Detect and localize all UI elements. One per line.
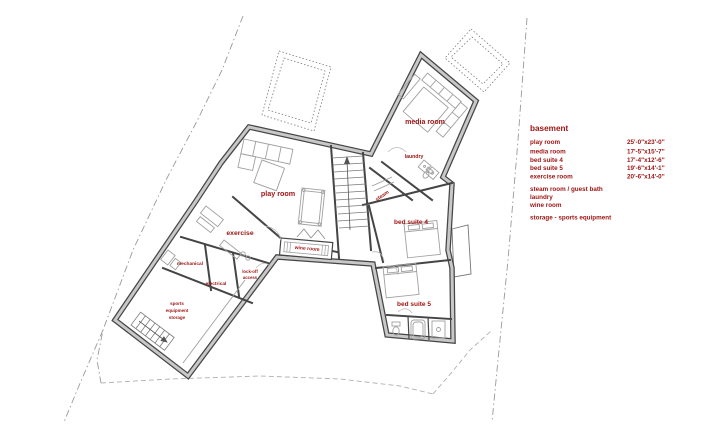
legend-item-name: laundry bbox=[530, 194, 553, 201]
legend-item-name: bed suite 4 bbox=[530, 157, 563, 164]
legend-title: basement bbox=[530, 124, 568, 133]
legend-item-dims: 20'-6"x14'-0" bbox=[627, 174, 665, 181]
exterior-walls bbox=[115, 55, 476, 376]
legend-item-dims: 17'-5"x15'-7" bbox=[627, 149, 665, 156]
floor-plan-drawing: play room media room laundry steam bed s… bbox=[0, 0, 708, 425]
label-lock-off-1: lock-off bbox=[242, 269, 258, 274]
label-bed-suite-5: bed suite 5 bbox=[397, 301, 431, 308]
legend-item-name: media room bbox=[530, 149, 566, 156]
legend-item-name: wine room bbox=[529, 202, 562, 209]
label-electrical: electrical bbox=[206, 281, 227, 287]
label-laundry: laundry bbox=[405, 154, 424, 160]
label-exercise: exercise bbox=[226, 230, 253, 237]
label-storage-1: sports bbox=[170, 301, 184, 306]
legend: basement play room 25'-0"x23'-0" media r… bbox=[529, 124, 665, 222]
deck-outline-dotted bbox=[262, 29, 510, 131]
label-storage-3: storage bbox=[169, 315, 186, 320]
legend-item-dims: 25'-0"x23'-0" bbox=[627, 139, 665, 146]
legend-item-name: play room bbox=[530, 139, 560, 146]
label-bed-suite-4: bed suite 4 bbox=[394, 219, 428, 226]
legend-item-dims: 19'-6"x14'-1" bbox=[627, 165, 665, 172]
label-storage-2: equipment bbox=[166, 308, 189, 313]
label-lock-off-2: access bbox=[243, 275, 258, 280]
legend-item-name: bed suite 5 bbox=[530, 165, 563, 172]
floor-plan-page: play room media room laundry steam bed s… bbox=[0, 0, 708, 425]
legend-item-name: steam room / guest bath bbox=[530, 186, 603, 193]
label-play-room: play room bbox=[261, 189, 295, 198]
label-mechanical: mechanical bbox=[177, 261, 203, 267]
label-media-room: media room bbox=[405, 119, 445, 126]
light-well bbox=[452, 225, 471, 277]
legend-item-name: exercise room bbox=[530, 174, 573, 181]
legend-item-name: storage - sports equipment bbox=[530, 215, 612, 222]
legend-item-dims: 17'-4"x12'-6" bbox=[627, 157, 665, 164]
